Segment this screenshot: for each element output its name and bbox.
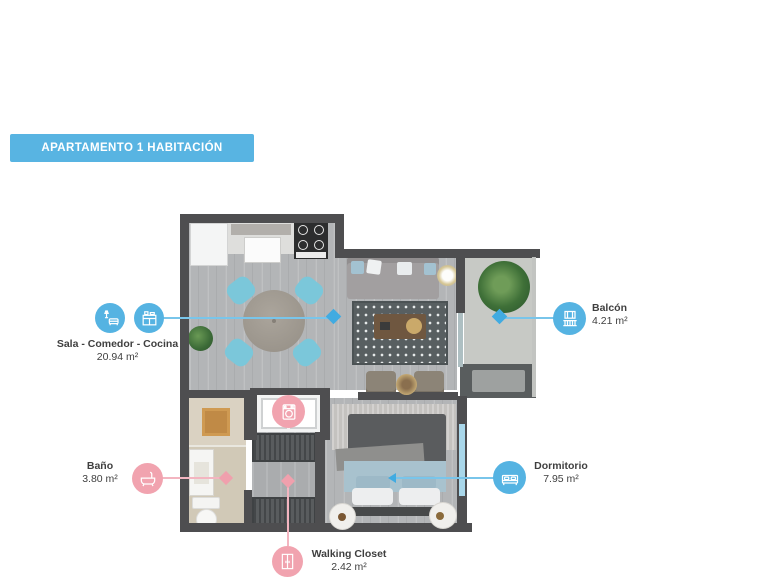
balcon-callout-line <box>503 317 555 319</box>
balcon-name: Balcón <box>592 302 682 315</box>
toilet-tank <box>192 497 220 509</box>
dormitorio-marker <box>388 473 396 483</box>
balcony-glass-door <box>458 313 463 367</box>
vanity-sink <box>194 462 209 484</box>
wall <box>189 390 251 398</box>
kitchen-cabinet-icon <box>140 309 159 328</box>
bathroom-vanity <box>189 449 214 496</box>
dormitorio-area: 7.95 m² <box>517 473 605 486</box>
wall <box>456 255 465 313</box>
sala-area: 20.94 m² <box>50 351 185 364</box>
floor-plan-page: APARTAMENTO 1 HABITACIÓN <box>0 0 768 584</box>
pillow <box>366 259 382 275</box>
walking-closet-callout-line <box>287 485 289 546</box>
wardrobe <box>252 497 316 526</box>
bano-callout-line <box>158 477 222 479</box>
balcon-label: Balcón 4.21 m² <box>592 302 682 328</box>
wall <box>180 214 344 223</box>
wall <box>244 490 252 532</box>
washing-machine-icon <box>279 402 299 422</box>
balcony-railing <box>532 257 536 397</box>
wall <box>339 249 540 258</box>
sala-name: Sala - Comedor - Cocina <box>50 338 185 351</box>
bano-label: Baño 3.80 m² <box>55 460 145 486</box>
walking-closet-name: Walking Closet <box>303 548 395 561</box>
wall <box>320 388 330 440</box>
fridge <box>190 223 228 266</box>
kitchen-shelf <box>231 224 291 235</box>
wall <box>180 523 472 532</box>
table-decor <box>380 322 390 330</box>
dormitorio-label: Dormitorio 7.95 m² <box>517 460 605 486</box>
walking-closet-label: Walking Closet 2.42 m² <box>303 548 395 574</box>
balcony-railing-icon <box>560 309 580 329</box>
wall <box>250 388 330 395</box>
floor-lamp <box>437 265 458 286</box>
balcony-bench <box>472 370 525 392</box>
wall <box>315 432 325 532</box>
nightstand <box>329 503 356 530</box>
balcony-plant <box>478 261 530 313</box>
nightstand-decor <box>436 512 444 520</box>
wardrobe <box>252 433 316 462</box>
laundry-icon-badge <box>272 395 305 428</box>
sala-label: Sala - Comedor - Cocina 20.94 m² <box>50 338 185 364</box>
pillow <box>424 263 436 275</box>
shower-mat <box>202 408 230 436</box>
coffee-table <box>374 314 426 339</box>
bano-name: Baño <box>55 460 145 473</box>
balcon-icon-badge <box>553 302 586 335</box>
sala-icon-badge <box>134 303 164 333</box>
dormitorio-name: Dormitorio <box>517 460 605 473</box>
plant <box>188 326 213 351</box>
dining-table <box>243 290 305 352</box>
pillow <box>397 262 412 275</box>
pillow <box>399 488 440 505</box>
nightstand <box>429 502 457 529</box>
sala-icon-badge <box>95 303 125 333</box>
nightstand-decor <box>338 513 346 521</box>
stove-burner <box>314 225 324 235</box>
plan-title-banner: APARTAMENTO 1 HABITACIÓN <box>10 134 254 162</box>
wall <box>180 214 189 532</box>
kitchen-sink <box>244 237 281 263</box>
stove-burner <box>298 225 308 235</box>
side-basket <box>396 374 417 395</box>
wall <box>250 388 257 440</box>
stove-burner <box>298 240 308 250</box>
bedroom-window <box>459 424 465 496</box>
pillow <box>351 261 364 274</box>
balcon-area: 4.21 m² <box>592 315 682 328</box>
sofa-lamp-icon <box>101 309 120 328</box>
walking-closet-area: 2.42 m² <box>303 561 395 574</box>
sofa <box>347 257 439 299</box>
sala-callout-line <box>148 317 334 319</box>
pillow <box>352 488 393 505</box>
shower-glass <box>189 445 246 447</box>
oven-front <box>296 252 326 258</box>
plan-title: APARTAMENTO 1 HABITACIÓN <box>41 142 222 154</box>
bano-area: 3.80 m² <box>55 473 145 486</box>
walking-closet-icon-badge <box>272 546 303 577</box>
dormitorio-callout-line <box>395 477 494 479</box>
table-center <box>272 319 276 323</box>
table-tray <box>406 318 422 334</box>
stove-burner <box>314 240 324 250</box>
wardrobe-icon <box>278 552 297 571</box>
stove <box>294 221 328 259</box>
